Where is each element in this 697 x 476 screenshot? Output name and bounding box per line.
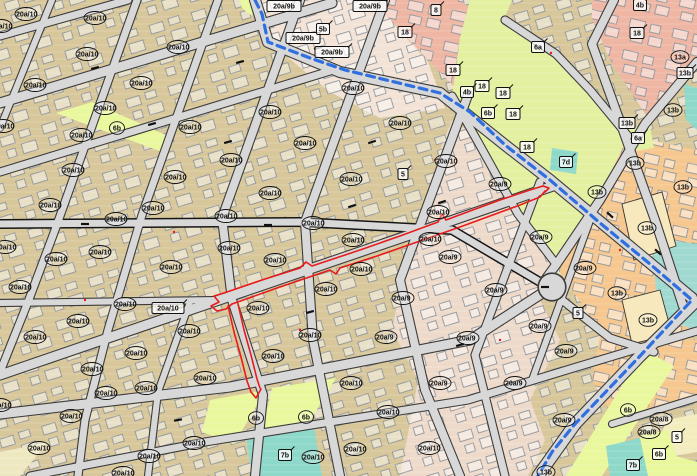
label-text: 20a/10 [71,133,93,140]
zone-label-20a/10: 20a/10 [315,283,338,296]
label-text: 20a/10 [46,257,68,264]
zone-label-13b: 13b [588,186,606,199]
label-text: 20a/10 [343,86,365,93]
label-text: 20a/9 [505,381,523,388]
label-text: 20a/10 [90,250,112,257]
label-text: 20a/10 [161,265,183,272]
label-text: 20a/10 [221,158,243,165]
label-text: 20a/10 [0,403,12,410]
label-text: 20a/10 [436,159,458,166]
label-text: 20a/10 [184,441,206,448]
zone-label-6b: 6b [299,411,314,424]
label-text: 20a/10 [341,177,363,184]
zone-label-20a/10: 20a/10 [70,129,93,142]
zone-label-20a/9: 20a/9 [489,178,511,191]
zone-label-20a/10: 20a/10 [247,302,270,315]
zone-label-20a/10: 20a/10 [340,377,363,390]
label-text: 13b [667,108,679,115]
zone-label-13b: 13b [608,287,626,300]
zone-label-20a/9: 20a/9 [574,262,596,275]
label-text: 20a/10 [0,245,17,252]
zone-label-20a/10: 20a/10 [302,217,325,230]
label-text: 20a/9 [575,266,593,273]
label-text: 20a/9 [440,255,458,262]
label-text: 8 [434,8,438,15]
label-text: 20a/10 [180,125,202,132]
label-text: 20a/10 [131,81,153,88]
label-text: 20a/10 [345,447,367,454]
zone-label-13b: 13b [639,314,657,327]
zone-label-20a/10: 20a/10 [215,210,238,223]
zone-label-20a/10: 20a/10 [9,281,32,294]
zone-label-6b: 6b [110,122,125,135]
zone-label-20a/9: 20a/9 [553,414,575,427]
label-text: 5 [576,311,580,318]
label-text: 13b [677,185,689,192]
label-text: 18 [401,30,409,37]
label-text: 6b [252,416,260,423]
zone-label-20a/10: 20a/10 [220,154,243,167]
label-text: 20a/10 [63,168,85,175]
label-text: 20a/10 [351,267,373,274]
zone-label-20a/9: 20a/9 [439,251,461,264]
label-text: 18 [449,68,457,75]
zone-label-20a/9: 20a/9 [530,231,552,244]
label-text: 7b [629,463,637,470]
label-text: 20a/10 [0,124,15,131]
label-text: 20a/9 [430,381,448,388]
label-text: 6b [655,452,663,459]
zone-label-20a/10: 20a/10 [294,137,317,150]
label-text: 20a/10 [265,258,287,265]
zone-label-20a/10: 20a/10 [342,82,365,95]
label-text: 20a/10 [115,302,137,309]
zone-label-20a/10: 20a/10 [344,443,367,456]
zone-label-20a/10: 20a/10 [389,117,412,130]
label-text: 20a/10 [25,83,47,90]
label-text: 6b [624,408,632,415]
label-text: 20a/10 [61,414,83,421]
oneway-tick [174,419,182,420]
city-zoning-map[interactable]: 20a/1020a/1020a/1020a/1020a/1020a/1020a/… [0,0,697,476]
label-text: 20a/10 [68,319,90,326]
label-text: 20a/10 [219,246,241,253]
zone-label-6b: 6b [621,404,636,417]
label-text: 20a/10 [139,454,161,461]
zone-label-20a/9: 20a/9 [392,292,414,305]
zone-label-20a/10: 20a/10 [95,387,118,400]
label-text: 20a/10 [303,221,325,228]
label-text: 20a/10 [85,16,107,23]
zone-label-20a/10: 20a/10 [130,77,153,90]
zone-label-13b: 13b [664,104,682,117]
label-text: 20a/10 [165,175,187,182]
zone-label-20a/10: 20a/10 [105,213,128,226]
label-text: 20a/10 [216,214,238,221]
label-text: 20a/10 [419,446,441,453]
zone-label-20a/10: 20a/10 [81,363,104,376]
label-text: 13b [621,121,633,128]
label-text: 20a/10 [40,203,62,210]
label-text: 6a [534,45,542,52]
zone-label-6b: 6b [249,412,264,425]
label-text: 20a/9 [530,324,548,331]
label-text: 20a/10 [95,106,117,113]
zone-label-20a/10: 20a/10 [45,253,68,266]
label-text: 13b [642,318,654,325]
label-text: 20a/10 [143,206,165,213]
zone-label-20a/10: 20a/10 [262,350,285,363]
zone-label-20a/9: 20a/9 [457,332,479,345]
label-text: 6b [484,111,492,118]
label-text: 20a/8 [651,417,669,424]
zone-label-20a/10: 20a/10 [259,187,282,200]
zone-label-20a/10: 20a/10 [302,451,325,464]
label-text: 20a/10 [168,45,190,52]
label-text: 20a/10 [390,121,412,128]
zone-label-20a/10: 20a/10 [167,41,190,54]
label-text: 20a/10 [263,354,285,361]
zone-label-20a/10: 20a/10 [160,261,183,274]
zone-label-20a/10: 20a/10 [179,121,202,134]
label-text: 20a/10 [248,306,270,313]
zone-label-20a/10: 20a/10 [28,442,51,455]
zone-label-20a/10: 20a/10 [418,442,441,455]
zone-label-20a/9b: 20a/9b [353,0,390,12]
zone-label-20a/10: 20a/10 [419,233,442,246]
zone-label-20a/10: 20a/10 [135,382,158,395]
label-text: 5 [401,172,405,179]
label-text: 20a/10 [0,24,13,31]
label-text: 20a/10 [77,52,99,59]
zone-label-20a/9: 20a/9 [529,320,551,333]
label-text: 13b [611,291,623,298]
label-text: 6b [113,126,121,133]
zone-label-20a/9: 20a/9 [485,284,507,297]
label-text: 20a/10 [25,335,47,342]
label-text: 20a/9 [556,349,574,356]
label-text: 20a/10 [82,367,104,374]
zone-label-20a/10: 20a/10 [76,48,99,61]
zone-label-20a/9: 20a/9 [429,377,451,390]
label-text: 20a/10 [106,217,128,224]
zone-label-20a/10: 20a/10 [264,254,287,267]
zone-label-20a/10: 20a/10 [218,242,241,255]
red-marker-dot [550,52,552,54]
label-text: 20a/10 [303,455,325,462]
zone-label-20a/10: 20a/10 [340,173,363,186]
label-text: 13b [591,190,603,197]
label-text: 20a/10 [428,210,450,217]
zone-label-20a/10: 20a/10 [24,79,47,92]
label-text: 20a/10 [260,110,282,117]
zone-label-20a/8: 20a/8 [638,426,660,439]
zone-label-13b: 13b [674,181,692,194]
zone-label-20a/10: 20a/10 [342,234,365,247]
label-text: 20a/10 [316,287,338,294]
label-text: 20a/10 [341,381,363,388]
red-marker-dot [619,249,621,251]
red-marker-dot [84,299,86,301]
zone-label-20a/10: 20a/10 [94,102,117,115]
label-text: 20a/9 [531,235,549,242]
label-text: 20a/8 [639,430,657,437]
zone-label-20a/9: 20a/9 [555,345,577,358]
label-text: 13a [674,55,686,62]
zone-label-20a/10: 20a/10 [350,263,373,276]
label-text: 20a/10 [10,285,32,292]
label-text: 18 [509,112,517,119]
label-text: 20a/9b [292,36,314,43]
map-canvas[interactable]: 20a/1020a/1020a/1020a/1020a/1020a/1020a/… [0,0,697,476]
zone-label-13b: 13b [626,157,644,170]
label-text: 20a/10 [195,376,217,383]
label-text: 20a/9b [321,50,343,57]
label-text: 20a/10 [157,306,179,313]
label-text: 4b [636,3,644,10]
zone-label-20a/10: 20a/10 [183,437,206,450]
label-text: 20a/9b [359,4,381,11]
zone-label-20a/10: 20a/10 [84,12,107,25]
zone-label-13b: 13b [638,222,656,235]
label-text: 18 [499,91,507,98]
label-text: 13b [540,470,552,476]
label-text: 13b [641,226,653,233]
label-text: 18 [633,31,641,38]
label-text: 20a/9 [393,296,411,303]
label-text: 20a/10 [300,333,322,340]
zone-label-20a/10: 20a/10 [164,171,187,184]
label-text: 5b [319,27,327,34]
zone-label-20a/10: 20a/10 [62,164,85,177]
label-text: 20a/9 [376,335,394,342]
label-text: 7b [281,453,289,460]
zone-label-13a: 13a [671,51,689,64]
zone-label-20a/8: 20a/8 [650,413,672,426]
label-text: 18 [478,84,486,91]
zone-label-20a/10: 20a/10 [24,331,47,344]
label-text: 20a/10 [260,191,282,198]
zone-label-20a/10: 20a/10 [125,347,148,360]
zone-label-20a/10: 20a/10 [114,298,137,311]
label-text: 18 [523,145,531,152]
label-text: 6a [634,136,642,143]
red-marker-dot [499,339,501,341]
zone-label-20a/9b: 20a/9b [267,0,304,12]
label-text: 20a/10 [96,391,118,398]
label-text: 20a/10 [295,141,317,148]
zone-label-20a/10: 20a/10 [138,450,161,463]
label-text: 20a/10 [179,329,201,336]
zone-label-20a/10: 20a/10 [178,325,201,338]
zone-label-20a/10: 20a/10 [39,199,62,212]
zone-label-20a/10: 20a/10 [60,410,83,423]
zone-label-20a/10: 20a/10 [142,202,165,215]
label-text: 20a/10 [16,12,38,19]
label-text: 6b [302,415,310,422]
zone-label-20a/10: 20a/10 [67,315,90,328]
red-marker-dot [173,231,175,233]
label-text: 20a/10 [343,238,365,245]
zone-label-20a/9: 20a/9 [375,331,397,344]
label-text: 20a/10 [126,351,148,358]
label-text: 20a/9 [490,182,508,189]
zone-label-20a/10: 20a/10 [299,329,322,342]
label-text: 20a/10 [136,386,158,393]
label-text: 20a/10 [113,471,135,476]
zone-label-20a/10: 20a/10 [194,372,217,385]
label-text: 7d [562,160,570,167]
label-text: 20a/10 [420,237,442,244]
label-text: 20a/10 [29,446,51,453]
zone-label-20a/10: 20a/10 [427,206,450,219]
label-text: 20a/10 [378,410,400,417]
label-text: 13b [629,161,641,168]
zone-label-20a/10: 20a/10 [435,155,458,168]
label-text: 5 [675,435,679,442]
zone-label-20a/10: 20a/10 [15,8,38,21]
label-text: 20a/9b [273,4,295,11]
label-text: 20a/9 [486,288,504,295]
label-text: 20a/9 [554,418,572,425]
zone-label-13b: 13b [537,466,555,476]
zone-label-20a/10: 20a/10 [89,246,112,259]
label-text: 4b [463,90,471,97]
zone-label-20a/10: 20a/10 [377,406,400,419]
zone-label-20a/9: 20a/9 [504,377,526,390]
label-text: 13b [679,71,691,78]
label-text: 20a/9 [458,336,476,343]
zone-label-20a/10: 20a/10 [259,106,282,119]
